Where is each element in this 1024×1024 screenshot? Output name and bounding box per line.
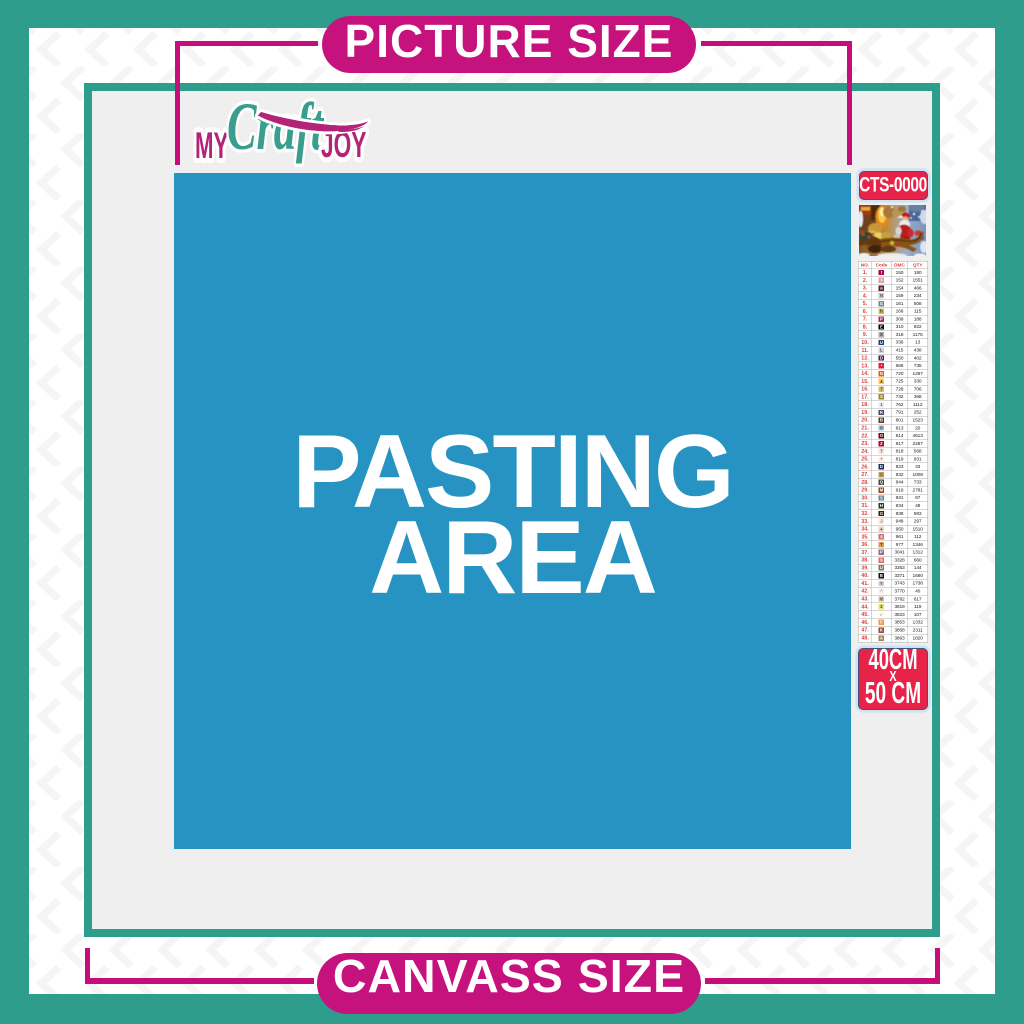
svg-text:MY: MY <box>195 125 228 166</box>
